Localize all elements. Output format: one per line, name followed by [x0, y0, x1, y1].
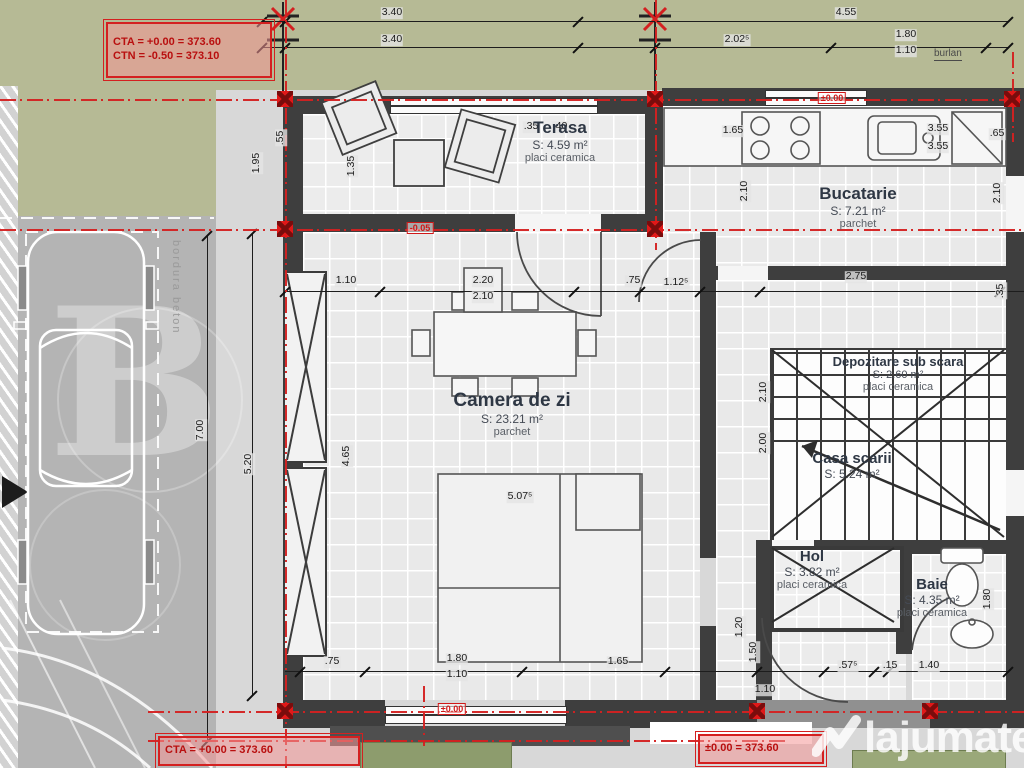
room-finish: placi ceramica — [897, 607, 967, 619]
window-panels — [284, 272, 326, 656]
dimension-label: 2.00 — [758, 432, 770, 454]
room-name: Casa scarii — [812, 450, 891, 467]
dimension-label: 1.80 — [982, 588, 994, 610]
axis-intersection-marker — [277, 703, 293, 719]
level-box-bottom-right: ±0.00 = 373.60 — [698, 734, 824, 764]
room-finish: placi ceramica — [525, 152, 595, 164]
dimension-label: .57⁵ — [838, 660, 859, 672]
room-label: Casa scarii S: 5.24 m² — [812, 450, 891, 481]
dimension-label: 1.20 — [734, 616, 746, 638]
curb-label: bordura beton — [170, 240, 182, 335]
dimension-label: 3.55 — [927, 123, 949, 135]
curb-arrow-marker — [2, 476, 28, 508]
dimension-label: 3.40 — [381, 7, 403, 19]
dimension-label: 2.20 — [472, 275, 494, 287]
dimension-label: 5.07⁵ — [507, 491, 534, 503]
room-label: Hol S: 3.82 m² placi ceramica — [777, 548, 847, 591]
room-label: Terasa S: 4.59 m² placi ceramica — [525, 118, 595, 164]
sofa — [438, 474, 642, 662]
room-area: S: 3.82 m² — [777, 565, 847, 579]
room-name: Camera de zi — [453, 390, 570, 412]
room-label: Bucatarie S: 7.21 m² parchet — [819, 184, 896, 230]
room-area: S: 4.35 m² — [897, 593, 967, 607]
axis-end-hatch — [267, 2, 671, 94]
dimension-label: 2.75 — [845, 271, 867, 283]
kitchen-appliances — [664, 108, 1006, 166]
axis-line-v2 — [655, 0, 657, 250]
dimension-label: .65 — [989, 128, 1006, 140]
dimension-label: 2.02⁵ — [724, 34, 751, 46]
watermark-brand: lajumate — [864, 716, 1024, 760]
dimension-label: 1.35 — [346, 155, 358, 177]
axis-intersection-marker — [1004, 91, 1020, 107]
floor-plan-canvas: 3.404.553.402.02⁵1.801.10.35.401.95.551.… — [0, 0, 1024, 768]
room-label: Baie S: 4.35 m² placi ceramica — [897, 576, 967, 619]
dimension-label: 2.10 — [758, 381, 770, 403]
dimension-label: .35 — [995, 283, 1007, 300]
room-area: S: 2.60 m² — [833, 369, 964, 381]
dimension-label: .75 — [625, 275, 642, 287]
dimension-label: 1.65 — [607, 656, 629, 668]
room-name: Bucatarie — [819, 184, 896, 204]
dimension-label: 1.65 — [722, 125, 744, 137]
room-area: S: 7.21 m² — [819, 204, 896, 218]
room-area: S: 4.59 m² — [525, 138, 595, 152]
dimension-label: 2.10 — [739, 180, 751, 202]
dimension-label: 1.50 — [748, 641, 760, 663]
room-name: Depozitare sub scara — [833, 354, 964, 369]
axis-line-h1 — [0, 99, 1024, 101]
dim-chain-left-outer — [207, 236, 208, 742]
dimension-label: 1.10 — [446, 669, 468, 681]
dim-chain-middle — [285, 291, 1024, 292]
room-area: S: 23.21 m² — [453, 412, 570, 426]
dimension-label: .75 — [324, 656, 341, 668]
level-box-top-left: CTA = +0.00 = 373.60 CTN = -0.50 = 373.1… — [106, 22, 272, 78]
level-box-line: CTA = +0.00 = 373.60 — [165, 744, 353, 758]
dining-set — [412, 268, 596, 396]
room-finish: parchet — [819, 218, 896, 230]
car — [14, 232, 158, 634]
dimension-label: .55 — [275, 130, 287, 147]
dimension-label: 2.10 — [472, 291, 494, 303]
axis-intersection-marker — [277, 221, 293, 237]
dimension-label: 1.10 — [335, 275, 357, 287]
dimension-label: 7.00 — [195, 419, 207, 441]
room-name: Baie — [897, 576, 967, 593]
dimension-label: 1.10 — [895, 45, 917, 57]
axis-intersection-marker — [647, 221, 663, 237]
dimension-label: 1.80 — [895, 29, 917, 41]
room-finish: parchet — [453, 426, 570, 438]
dimension-label: 4.65 — [341, 445, 353, 467]
axis-intersection-marker — [647, 91, 663, 107]
dimension-label: 1.10 — [754, 684, 776, 696]
dim-chain-top-1 — [262, 21, 1008, 22]
downspout-label: burlan — [934, 48, 962, 61]
room-name: Hol — [777, 548, 847, 565]
dimension-label: .15 — [882, 660, 899, 672]
watermark-logo-icon — [812, 712, 864, 764]
dimension-label: 1.12⁵ — [663, 277, 690, 289]
room-name: Terasa — [525, 118, 595, 138]
dim-chain-bottom — [285, 671, 1008, 672]
dimension-label: 3.55 — [927, 141, 949, 153]
dimension-label: 1.80 — [446, 653, 468, 665]
axis-intersection-marker — [277, 91, 293, 107]
dimension-label: 2.10 — [992, 182, 1004, 204]
level-tag: ±0.00 — [438, 703, 466, 715]
dimension-label: 1.95 — [251, 152, 263, 174]
level-box-bottom-left: CTA = +0.00 = 373.60 — [158, 736, 360, 766]
axis-line-v4 — [423, 686, 425, 746]
watermark: lajumate .ro — [812, 712, 1024, 764]
dimension-label: 5.20 — [243, 453, 255, 475]
dimension-label: 3.40 — [381, 34, 403, 46]
dimension-label: 1.40 — [918, 660, 940, 672]
room-finish: placi ceramica — [777, 579, 847, 591]
level-box-line: ±0.00 = 373.60 — [705, 742, 817, 756]
axis-intersection-marker — [749, 703, 765, 719]
level-box-line1: CTA = +0.00 = 373.60 — [113, 36, 265, 50]
level-tag: ±0.00 — [818, 92, 846, 104]
level-tag: -0.05 — [407, 222, 434, 234]
room-finish: placi ceramica — [833, 381, 964, 393]
dimension-label: 4.55 — [835, 7, 857, 19]
room-label: Camera de zi S: 23.21 m² parchet — [453, 390, 570, 438]
axis-line-v1 — [285, 0, 287, 768]
level-box-line2: CTN = -0.50 = 373.10 — [113, 50, 265, 64]
planter-left — [360, 742, 512, 768]
room-area: S: 5.24 m² — [812, 467, 891, 481]
parking-markings — [0, 218, 242, 768]
room-label: Depozitare sub scara S: 2.60 m² placi ce… — [833, 354, 964, 393]
